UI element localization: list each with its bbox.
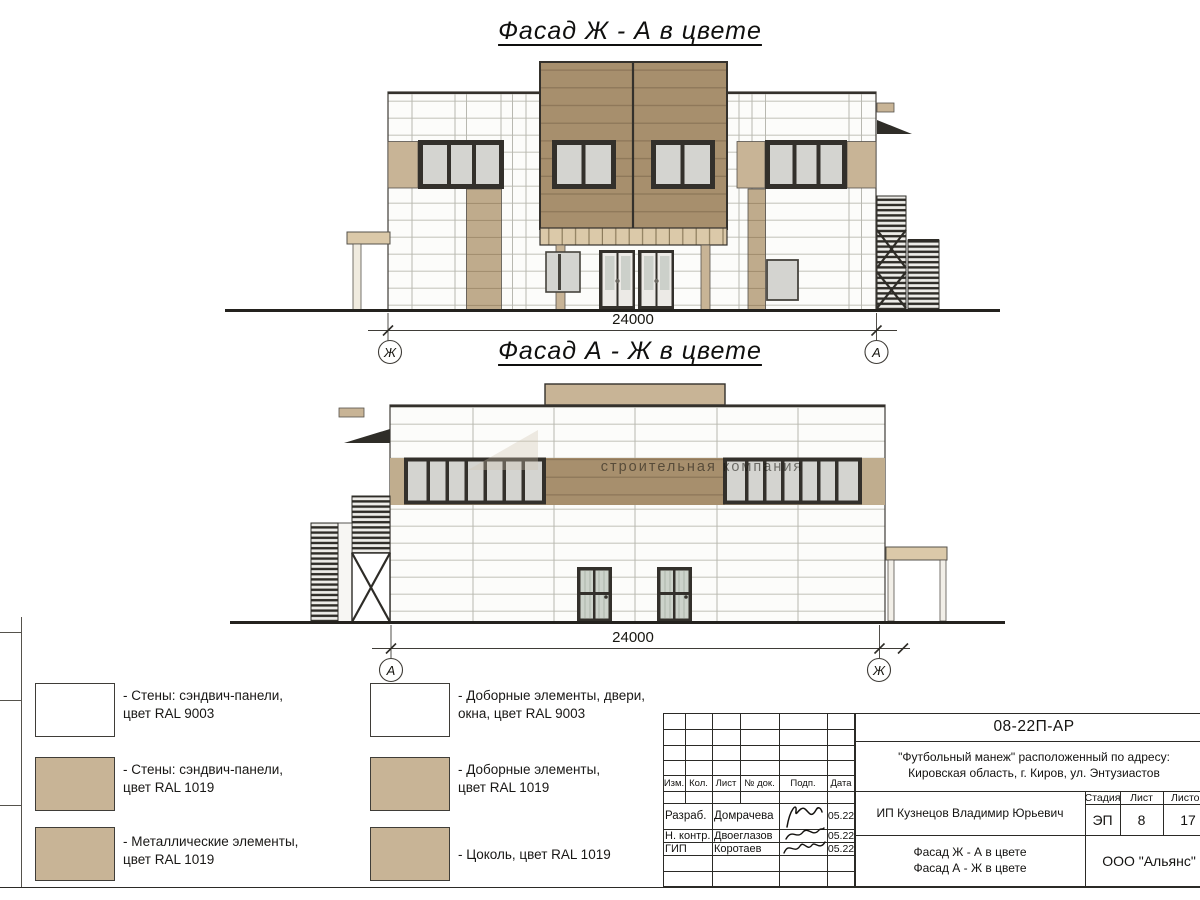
facade2-title: Фасад А - Ж в цвете bbox=[395, 337, 865, 366]
row-date: 05.22 bbox=[827, 829, 855, 842]
company-name: ООО "Альянс" bbox=[1085, 835, 1200, 887]
project-address-line2: Кировская область, г. Киров, ул. Энтузиа… bbox=[908, 766, 1160, 782]
sheet-name-line1: Фасад Ж - А в цвете bbox=[913, 845, 1026, 861]
facade1-title: Фасад Ж - А в цвете bbox=[395, 17, 865, 46]
sheet-frame-left bbox=[21, 617, 22, 887]
row-role: Разраб. bbox=[665, 803, 712, 829]
legend-swatch-ral1019-walls bbox=[35, 757, 115, 811]
watermark-text: строительная компания bbox=[601, 459, 804, 475]
titleblock-grid-line bbox=[663, 729, 855, 730]
facade2-drawing: строительная компания bbox=[230, 384, 1005, 682]
col-kol: Кол. bbox=[685, 775, 712, 791]
facade2-dimension-label: 24000 bbox=[612, 629, 654, 646]
project-address-line1: "Футбольный манеж" расположенный по адре… bbox=[898, 750, 1170, 766]
facade1-drawing: 24000 Ж А bbox=[225, 62, 1000, 364]
sheets-label: Листов bbox=[1163, 791, 1200, 804]
stage-value: ЭП bbox=[1085, 804, 1120, 835]
signature-mark bbox=[781, 837, 827, 859]
row-date: 05.22 bbox=[827, 842, 855, 855]
facade1-fire-escape bbox=[877, 103, 939, 310]
facade2-axis-left-label: А bbox=[386, 663, 396, 678]
titleblock-grid-line bbox=[663, 760, 855, 761]
col-podp: Подп. bbox=[779, 775, 827, 791]
doc-number: 08-22П-АР bbox=[855, 713, 1200, 741]
row-date: 05.22 bbox=[827, 803, 855, 829]
facade1-dimension-label: 24000 bbox=[612, 311, 654, 328]
legend-swatch-ral1019-trim bbox=[370, 757, 450, 811]
legend-swatch-ral9003-trim bbox=[370, 683, 450, 737]
sheet-frame-tick bbox=[0, 632, 21, 633]
row-name: Двоеглазов bbox=[714, 829, 780, 842]
legend-swatch-ral1019-plinth bbox=[370, 827, 450, 881]
sheet-label: Лист bbox=[1120, 791, 1163, 804]
legend-swatch-ral9003-walls bbox=[35, 683, 115, 737]
row-name: Коротаев bbox=[714, 842, 780, 855]
row-role: ГИП bbox=[665, 842, 713, 855]
sheet-frame-tick bbox=[0, 805, 21, 806]
titleblock-grid-line bbox=[663, 745, 855, 746]
facade1-axis-right-label: А bbox=[871, 345, 881, 360]
legend-label: - Стены: сэндвич-панели, цвет RAL 1019 bbox=[123, 761, 358, 796]
legend-swatch-ral1019-metal bbox=[35, 827, 115, 881]
facade2-fire-escape bbox=[311, 408, 390, 622]
titleblock-grid-line bbox=[779, 713, 780, 887]
col-doc: № док. bbox=[740, 775, 779, 791]
legend-label: - Металлические элементы, цвет RAL 1019 bbox=[123, 833, 358, 868]
sheet-value: 8 bbox=[1120, 804, 1163, 835]
col-list: Лист bbox=[712, 775, 740, 791]
client-name: ИП Кузнецов Владимир Юрьевич bbox=[855, 791, 1085, 835]
titleblock-grid-line bbox=[827, 713, 828, 887]
facade2-axis-right-label: Ж bbox=[872, 663, 886, 678]
facade2-dimension: 24000 А Ж bbox=[372, 625, 910, 682]
col-izm: Изм. bbox=[663, 775, 685, 791]
legend-label: - Стены: сэндвич-панели, цвет RAL 9003 bbox=[123, 687, 358, 722]
sheet-frame-tick bbox=[0, 700, 21, 701]
row-name: Домрачева bbox=[714, 803, 779, 829]
sheets-value: 17 bbox=[1163, 804, 1200, 835]
sheet-name: Фасад Ж - А в цвете Фасад А - Ж в цвете bbox=[855, 835, 1085, 887]
drawing-sheet: 24000 Ж А bbox=[0, 0, 1200, 900]
titleblock-grid-line bbox=[712, 713, 713, 887]
titleblock-grid-line bbox=[663, 871, 855, 872]
sheet-name-line2: Фасад А - Ж в цвете bbox=[913, 861, 1026, 877]
row-role: Н. контр. bbox=[665, 829, 713, 842]
stage-label: Стадия bbox=[1085, 791, 1120, 804]
project-address: "Футбольный манеж" расположенный по адре… bbox=[859, 741, 1200, 791]
col-data: Дата bbox=[827, 775, 855, 791]
